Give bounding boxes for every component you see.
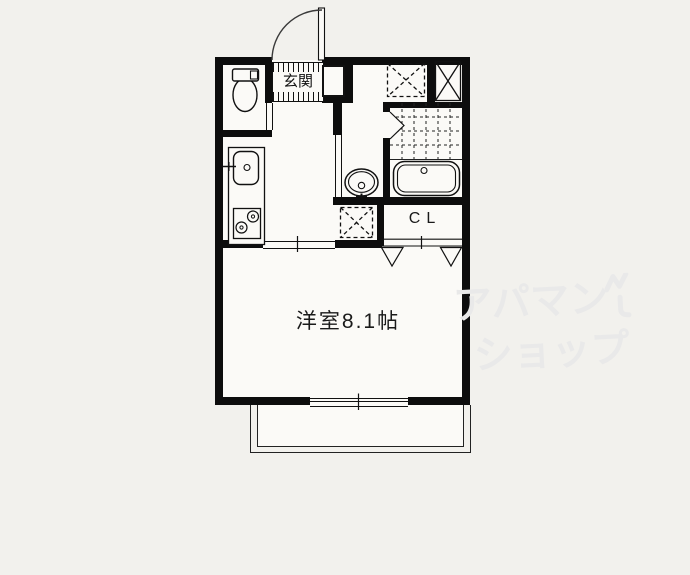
watermark-mascot-icon	[604, 272, 640, 322]
room-sliding-door	[263, 241, 335, 249]
watermark-line2: ショップ	[473, 322, 667, 383]
wall-washroom-bottom	[333, 197, 467, 205]
balcony-window	[310, 398, 408, 407]
entrance-label: 玄関	[273, 72, 323, 92]
entrance-door-icon	[272, 8, 325, 60]
wall-room-top-mid	[335, 240, 382, 248]
main-room-label: 洋室8.1帖	[258, 305, 438, 335]
wall-left	[215, 57, 223, 405]
wall-bottom-left	[215, 397, 310, 405]
entrance-step: 玄関	[272, 62, 324, 102]
balcony-inner-line	[257, 405, 464, 447]
shoe-cabinet	[322, 65, 345, 97]
wall-closet-left	[377, 197, 384, 246]
watermark: アパマン ショップ	[452, 271, 667, 383]
wall-bath-top	[383, 102, 467, 108]
wall-bath-left-bottom	[383, 138, 390, 197]
wall-pipe-space-left	[427, 57, 435, 108]
entrance-hatch-bottom	[273, 91, 323, 101]
wall-bottom-right	[408, 397, 470, 405]
wall-top-left	[215, 57, 272, 65]
closet-label: CL	[396, 210, 454, 228]
washroom-sliding-door	[335, 135, 342, 197]
interior-floor	[219, 60, 466, 401]
wall-room-top-left	[215, 240, 263, 248]
wall-toilet-bottom	[215, 130, 272, 137]
toilet-door	[266, 103, 273, 130]
floor-plan: 玄関 洋室8.1帖 CL アパマン ショップ	[0, 0, 690, 575]
wall-washroom-left	[333, 95, 342, 135]
wall-toilet-right	[265, 57, 272, 103]
